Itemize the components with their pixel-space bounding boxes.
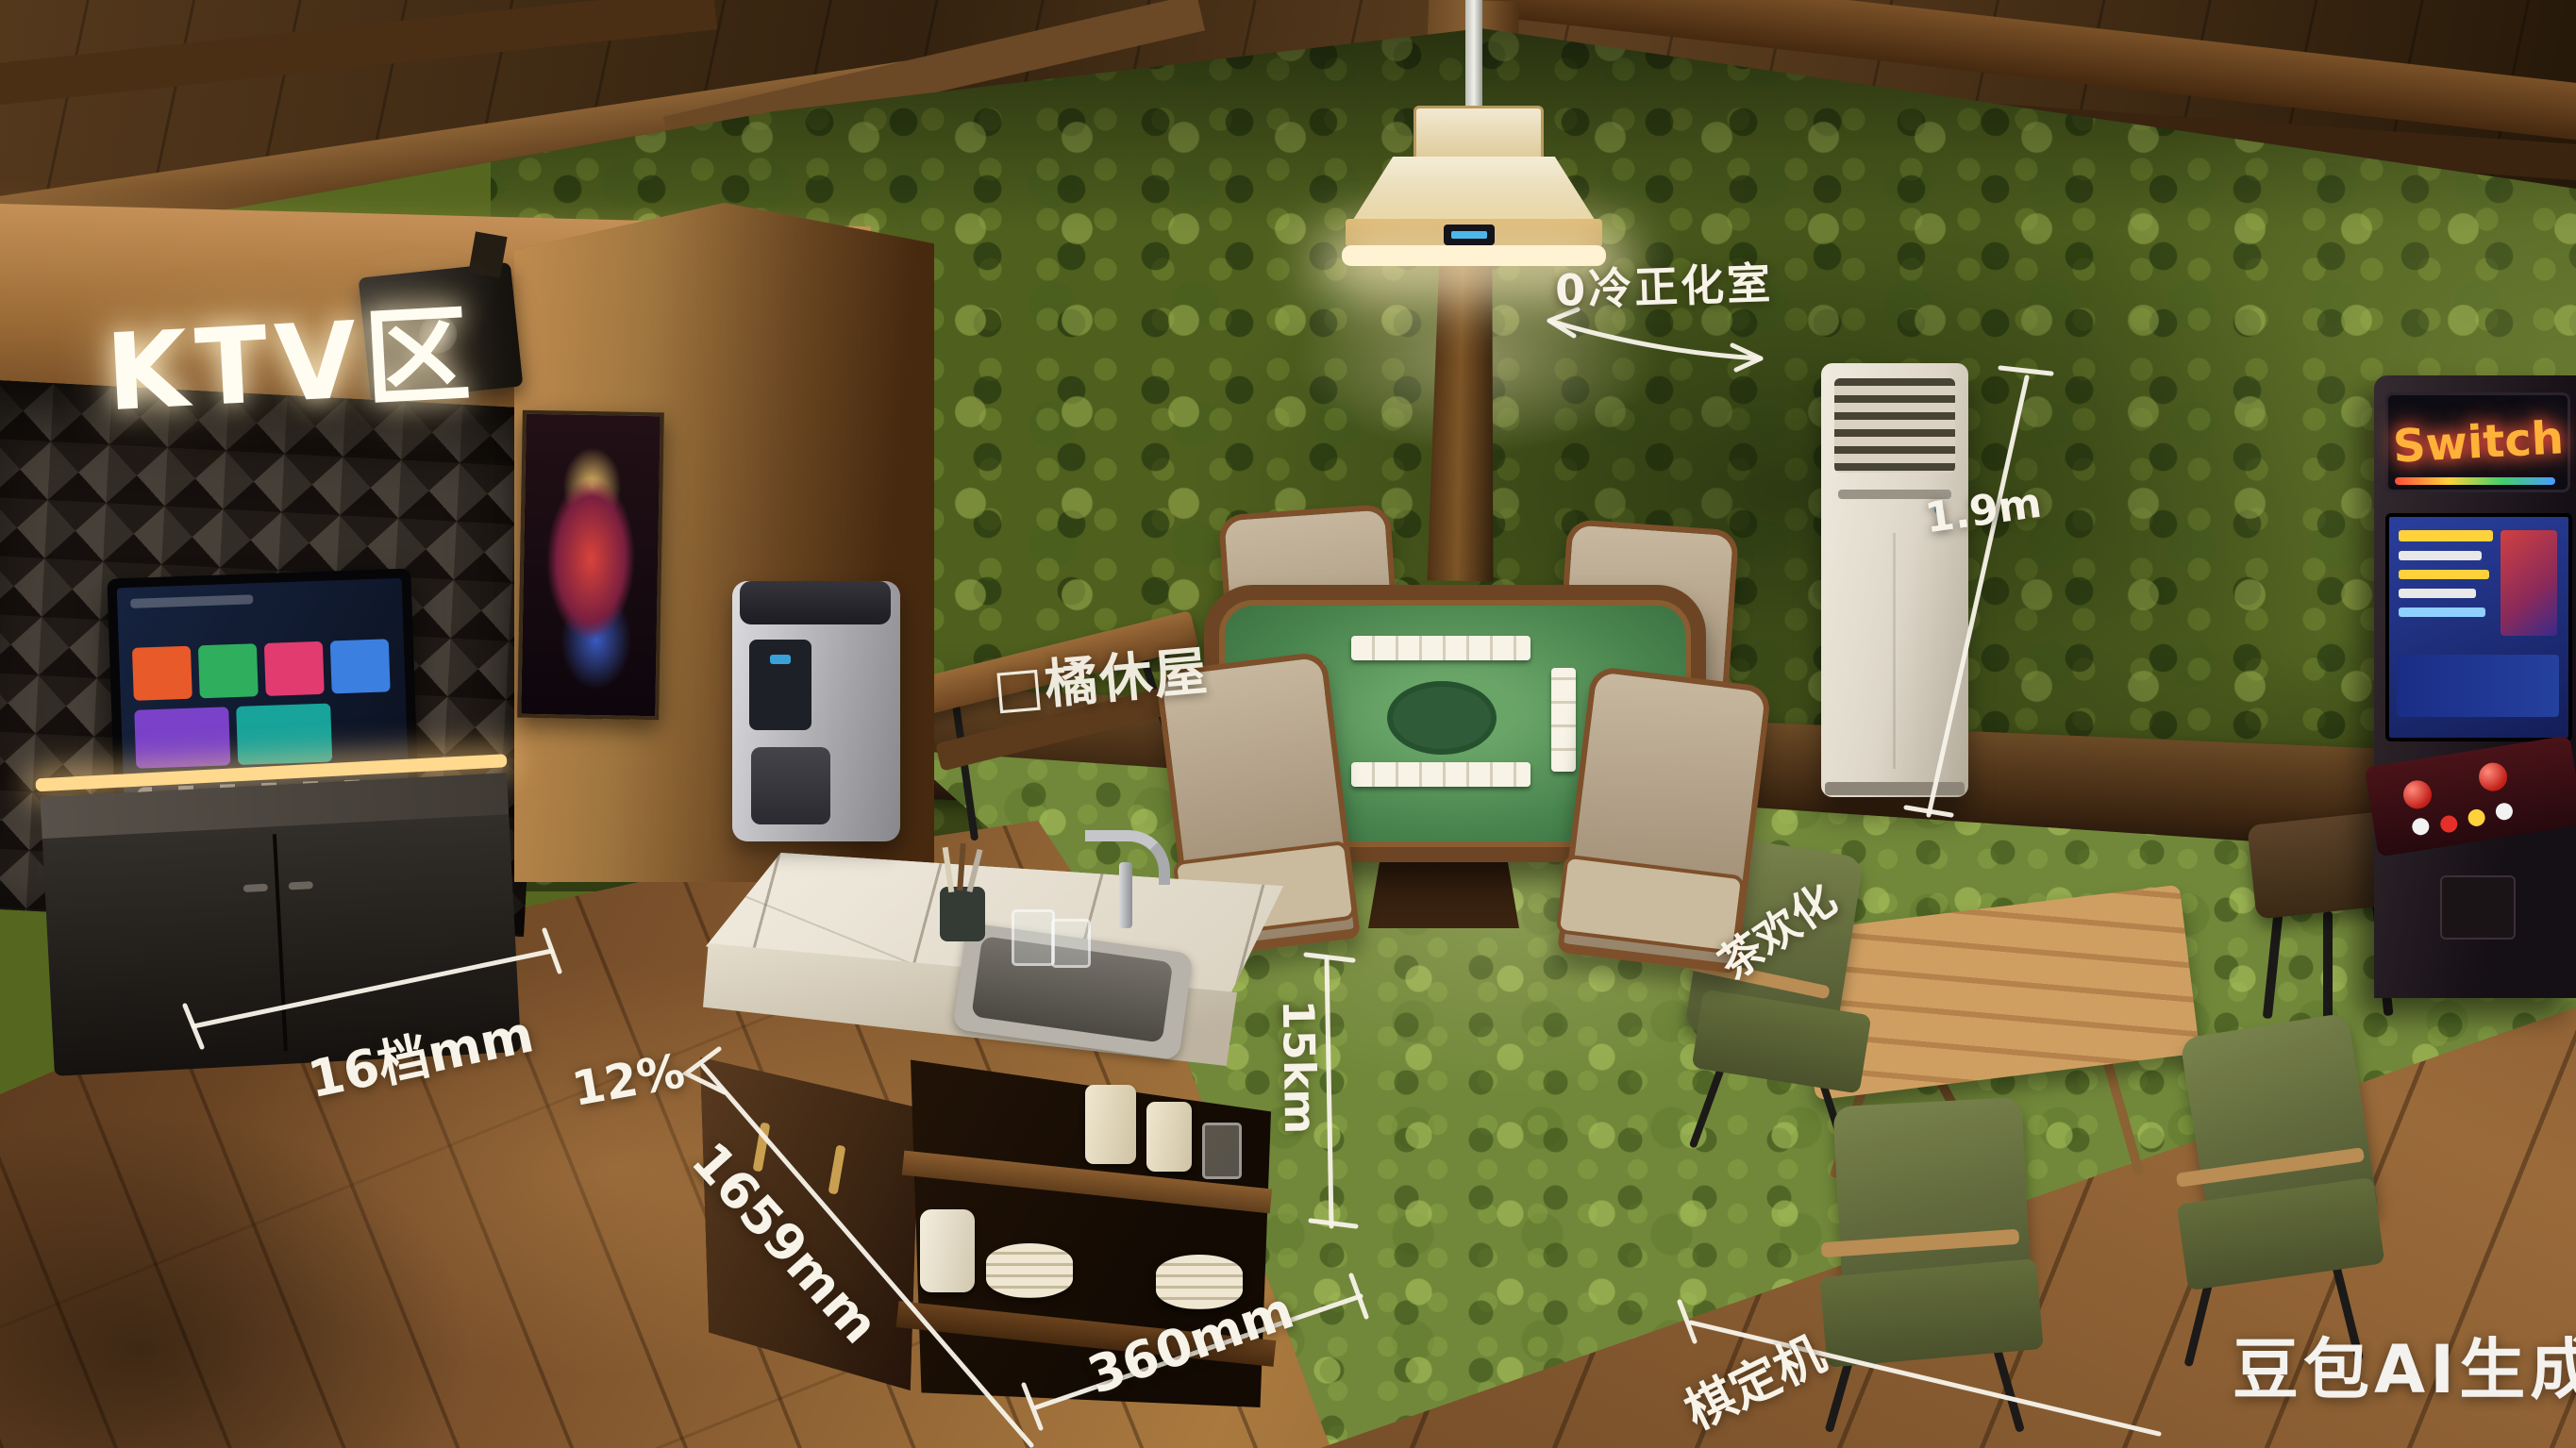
tv-tile bbox=[330, 639, 391, 693]
ktv-sign-text: KTV区 bbox=[102, 269, 481, 441]
shelf-canister bbox=[1085, 1085, 1136, 1164]
shelf-jug bbox=[920, 1209, 975, 1292]
tv-tile bbox=[132, 646, 192, 701]
lamp-display bbox=[1444, 225, 1495, 245]
shelf-glass bbox=[1202, 1123, 1242, 1179]
arcade-joystick bbox=[2401, 778, 2434, 810]
dispenser-spout-bay bbox=[751, 747, 830, 824]
mahjong-tiles bbox=[1351, 636, 1531, 660]
lamp-pole bbox=[1465, 0, 1482, 121]
hvac-label: 0冷正化室 bbox=[1554, 249, 1774, 319]
ac-base bbox=[1825, 782, 1965, 795]
dispenser-lid bbox=[740, 581, 891, 624]
arcade-button bbox=[2411, 817, 2431, 837]
lamp-shade bbox=[1351, 157, 1597, 223]
wall-poster bbox=[517, 410, 664, 721]
mahjong-tiles bbox=[1551, 668, 1576, 772]
arcade-menu-row bbox=[2399, 570, 2489, 579]
grass-span-label: 15km bbox=[1272, 977, 1326, 1157]
camp-chair bbox=[1812, 1094, 2076, 1434]
tv-tile bbox=[198, 643, 259, 698]
watermark: 豆包AI生成 bbox=[2233, 1317, 2576, 1412]
arcade-bottom-band bbox=[2397, 655, 2559, 717]
cabinet-handle bbox=[828, 1145, 846, 1195]
tv-topbar bbox=[130, 594, 253, 608]
arcade-cabinet: Switch bbox=[2374, 375, 2576, 998]
dispenser-indicator bbox=[770, 655, 791, 664]
mahjong-turntable bbox=[1387, 681, 1497, 755]
arcade-preview-art bbox=[2501, 530, 2557, 636]
stool-leg bbox=[2323, 911, 2333, 1020]
lamp-display-digits bbox=[1451, 231, 1487, 239]
shelf-canister bbox=[1146, 1102, 1192, 1172]
ceiling-beam bbox=[0, 0, 717, 107]
arcade-menu-row bbox=[2399, 607, 2485, 617]
arcade-control-deck bbox=[2365, 735, 2576, 857]
ac-grille bbox=[1834, 378, 1955, 473]
arcade-button bbox=[2467, 808, 2486, 828]
glass-cup bbox=[1051, 919, 1091, 968]
tv-tile bbox=[264, 641, 325, 696]
tv-tile bbox=[134, 707, 230, 768]
water-dispenser bbox=[732, 581, 900, 841]
dispenser-screen bbox=[749, 640, 811, 730]
stool-leg bbox=[2263, 906, 2283, 1019]
ac-seam bbox=[1893, 533, 1896, 769]
room-render: Switch bbox=[0, 0, 2576, 1448]
arcade-coin-door bbox=[2440, 875, 2516, 940]
arcade-joystick bbox=[2477, 760, 2509, 792]
arcade-menu-row bbox=[2399, 530, 2493, 541]
sideboard-handle bbox=[243, 884, 268, 892]
sideboard-door-seam bbox=[273, 834, 288, 1051]
tv-tile bbox=[236, 704, 332, 765]
pen-cup bbox=[940, 887, 985, 941]
arcade-marquee-text: Switch bbox=[2391, 411, 2565, 473]
glass-cup bbox=[1012, 909, 1055, 966]
arcade-button bbox=[2495, 802, 2515, 822]
arcade-marquee-rainbow bbox=[2395, 477, 2555, 485]
corner-shadow bbox=[0, 1113, 472, 1448]
plate-stack bbox=[986, 1243, 1073, 1298]
arcade-screen bbox=[2385, 513, 2572, 741]
arcade-button bbox=[2439, 814, 2459, 834]
arcade-menu-row bbox=[2399, 589, 2476, 598]
air-conditioner bbox=[1821, 363, 1968, 797]
bench-leg bbox=[951, 700, 979, 841]
mahjong-tiles bbox=[1351, 762, 1531, 787]
arcade-menu-row bbox=[2399, 551, 2482, 560]
sideboard-handle bbox=[289, 881, 313, 890]
